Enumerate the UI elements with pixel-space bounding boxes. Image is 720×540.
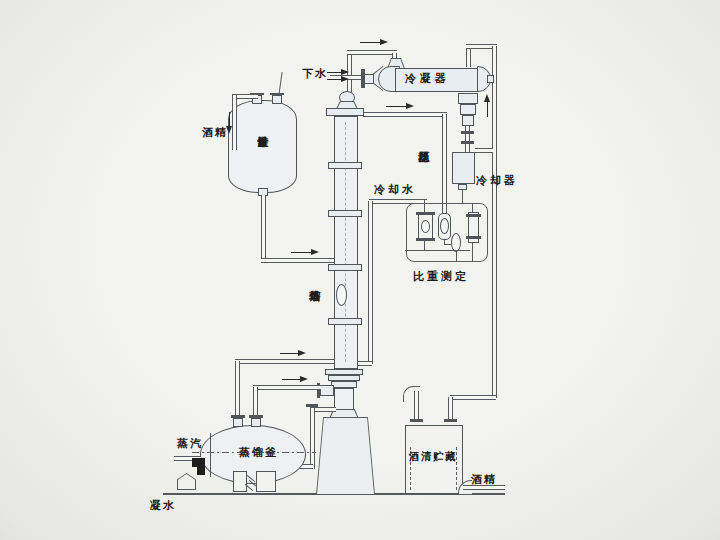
label-density-measurement: 比重测定 <box>413 271 469 282</box>
deviceA-bottom-flange <box>416 238 435 241</box>
deviceC-top-flange <box>466 214 481 217</box>
neck-flange-tick-1 <box>461 131 474 134</box>
column-flange-4 <box>328 318 362 325</box>
label-cooler: 冷却器 <box>476 175 518 186</box>
pipe-kettle-return-h <box>253 385 321 390</box>
pipe-kettle-vapor-v <box>235 361 240 418</box>
stabilizer-box <box>452 152 475 184</box>
pipe-product-outlet <box>463 485 505 490</box>
label-steam: 蒸汽 <box>177 438 203 449</box>
column-flange-2 <box>328 210 362 217</box>
reducer-segment-2 <box>460 104 476 115</box>
kettle-head-seam <box>210 433 211 477</box>
metering-vent-line <box>278 72 282 95</box>
steam-trap <box>178 474 195 489</box>
line-stabilizer-outlet <box>462 190 463 204</box>
storage-right-inlet-flange <box>444 419 457 422</box>
pipe-kettle-vapor-h <box>235 359 334 364</box>
column-inner-line <box>345 122 346 362</box>
column-flange-3 <box>328 264 362 271</box>
deviceC-bottom-flange <box>466 236 481 239</box>
line-inner-header <box>405 250 470 251</box>
flow-arrow-feed <box>291 252 311 253</box>
flow-arrow-alcohol-feed <box>229 112 230 126</box>
line-deviceC-bottom <box>472 243 473 262</box>
steam-valve-stem <box>197 464 205 475</box>
metering-right-nozzle <box>272 95 282 104</box>
label-distillation-kettle: 蒸馏釜 <box>239 447 278 458</box>
pipe-feed-horizontal <box>261 258 334 263</box>
reducer-segment-3 <box>462 115 474 126</box>
column-bottom-collar <box>331 381 357 388</box>
label-cooling-water: 冷却水 <box>374 184 416 195</box>
sight-glass-window <box>421 220 430 233</box>
metering-tank <box>228 100 297 193</box>
flow-arrow-to-measurement <box>386 106 406 107</box>
label-condenser: 冷凝器 <box>405 73 450 84</box>
reducer-segment-1 <box>458 93 478 104</box>
distillation-flow-diagram: 下水 冷凝器 稳压器 冷却器 冷却水 <box>0 0 720 540</box>
flow-arrow-downpipe <box>487 102 488 117</box>
column-top-plate <box>326 108 364 116</box>
pipe-feed-vertical <box>261 195 266 262</box>
pipe-overhead-run <box>347 50 397 55</box>
pipe-alcohol-inlet-drop <box>232 95 237 150</box>
kettle-nozzleL <box>233 418 243 427</box>
flow-arrow-kettle-vapor <box>280 353 298 354</box>
flow-arrow-overhead <box>360 42 380 43</box>
pipe-cooling-return <box>368 201 373 364</box>
pipe-cooling-into-column <box>356 361 372 366</box>
pipe-downcomer-v <box>310 408 315 469</box>
label-alcohol-feed: 酒精 <box>202 127 228 138</box>
label-alcohol-storage: 酒清贮藏 <box>409 452 457 463</box>
column-flange-1 <box>328 162 362 169</box>
flow-arrow-drain-water-2 <box>327 79 341 80</box>
kettle-support-1 <box>233 471 247 492</box>
pipe-product-bend-h <box>450 395 496 400</box>
kettle-nozzleR <box>251 418 261 427</box>
pipe-plate-to-measurement <box>363 112 447 117</box>
neck-flange-tick-2 <box>461 141 474 144</box>
gooseneck-hook <box>403 386 420 402</box>
label-condensate: 凝水 <box>150 500 176 511</box>
label-drain-water: 下水 <box>302 68 328 79</box>
pipe-downpipe-branch <box>475 148 493 153</box>
pipe-measurement-drop <box>442 114 447 214</box>
flow-arrow-drain-water-1 <box>327 72 341 73</box>
label-alcohol-product: 酒精 <box>471 474 497 485</box>
condenser-tip-nozzle <box>487 75 494 83</box>
float-gauge-window <box>440 218 449 234</box>
storage-left-inlet-flange <box>410 419 423 422</box>
column-side-nozzle <box>320 385 334 396</box>
flow-arrow-kettle-return <box>282 379 300 380</box>
column-body <box>334 116 358 369</box>
column-skirt <box>317 418 374 494</box>
column-sight-glass <box>336 284 347 306</box>
pipe-kettle-return-v <box>253 387 258 418</box>
kettle-support-2 <box>256 471 276 492</box>
pipe-product-downpipe <box>492 46 497 398</box>
line-egg-bottom <box>456 251 457 262</box>
